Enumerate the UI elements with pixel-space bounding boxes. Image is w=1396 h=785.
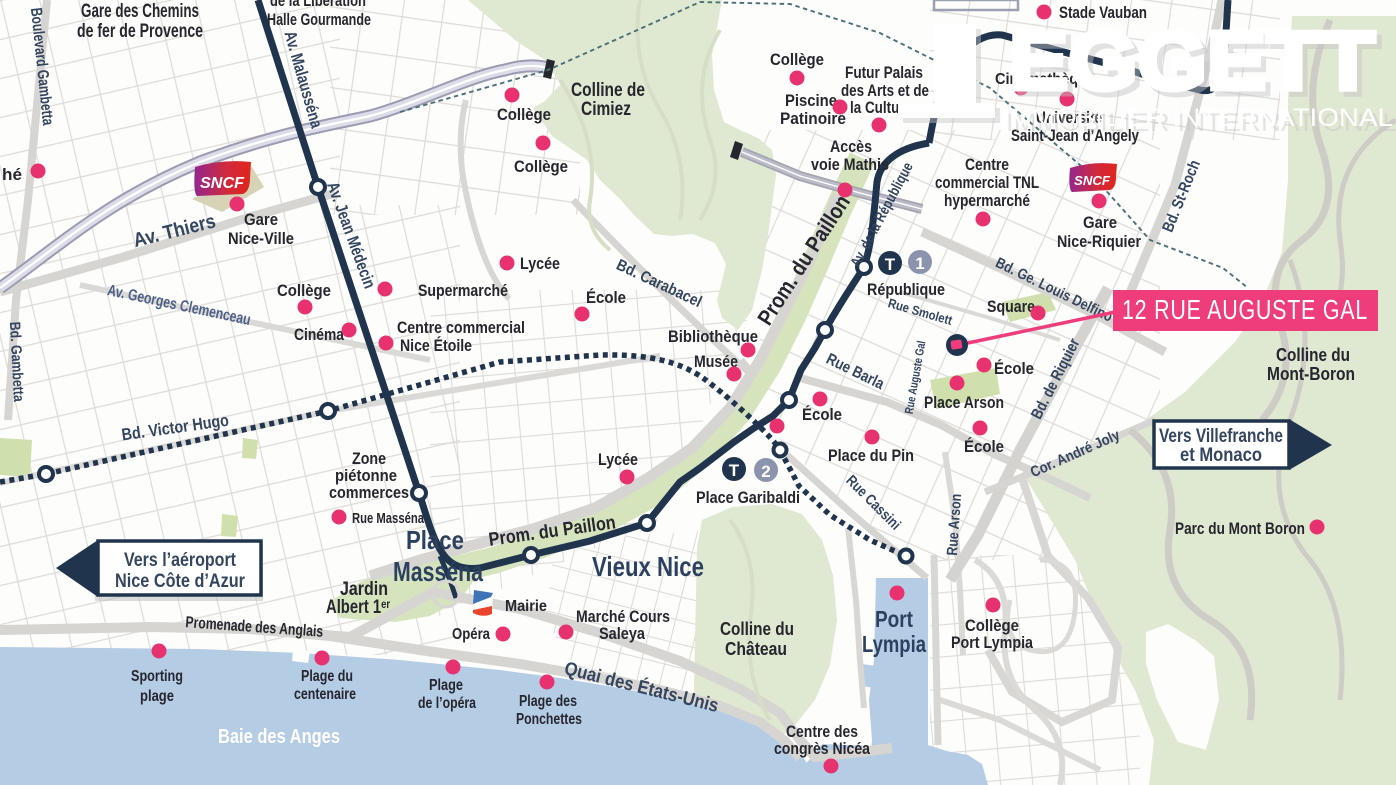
svg-text:Collège: Collège <box>770 50 824 69</box>
svg-text:Centre commercial: Centre commercial <box>397 318 525 337</box>
svg-text:Place Arson: Place Arson <box>924 393 1004 412</box>
svg-text:Vieux Nice: Vieux Nice <box>592 551 704 582</box>
svg-text:Plage des: Plage des <box>519 693 577 710</box>
svg-text:Accès: Accès <box>830 137 872 156</box>
svg-text:de la Libération: de la Libération <box>270 0 366 10</box>
svg-text:Saleya: Saleya <box>599 624 645 643</box>
svg-text:12 RUE AUGUSTE GAL: 12 RUE AUGUSTE GAL <box>1122 294 1368 325</box>
svg-text:Port: Port <box>875 606 913 632</box>
svg-text:République: République <box>867 280 945 299</box>
svg-text:hypermarché: hypermarché <box>944 191 1030 210</box>
svg-text:Vers Villefranche: Vers Villefranche <box>1159 426 1283 447</box>
svg-text:centenaire: centenaire <box>294 686 356 703</box>
svg-text:École: École <box>964 437 1004 456</box>
svg-text:Collège: Collège <box>497 105 551 124</box>
svg-text:Lympia: Lympia <box>862 631 926 657</box>
svg-text:Place du Pin: Place du Pin <box>828 446 914 465</box>
svg-text:Nice Étoile: Nice Étoile <box>400 336 472 355</box>
svg-text:Port Lympia: Port Lympia <box>951 633 1033 652</box>
svg-text:Futur Palais: Futur Palais <box>845 63 923 82</box>
svg-text:et Monaco: et Monaco <box>1180 445 1262 466</box>
svg-text:École: École <box>586 288 626 307</box>
svg-text:Albert 1er: Albert 1er <box>326 597 390 618</box>
svg-text:Parc du Mont Boron: Parc du Mont Boron <box>1175 519 1305 538</box>
svg-text:Place Garibaldi: Place Garibaldi <box>696 488 800 507</box>
svg-text:voie Mathis: voie Mathis <box>811 155 889 174</box>
svg-text:Plage: Plage <box>429 677 463 694</box>
svg-text:Gare: Gare <box>244 210 278 229</box>
svg-text:congrès Nicéa: congrès Nicéa <box>774 739 870 758</box>
svg-text:commercial TNL: commercial TNL <box>935 173 1039 192</box>
svg-text:Lycée: Lycée <box>598 450 638 469</box>
svg-text:Bibliothèque: Bibliothèque <box>668 327 758 346</box>
svg-text:Gare: Gare <box>1083 213 1117 232</box>
svg-text:SNCF: SNCF <box>1074 173 1111 188</box>
svg-text:IMMOBILIER INTERNATIONAL: IMMOBILIER INTERNATIONAL <box>1001 104 1393 132</box>
svg-text:Château: Château <box>725 639 787 659</box>
svg-text:Gare des Chemins: Gare des Chemins <box>81 1 199 22</box>
svg-text:T: T <box>729 461 740 480</box>
svg-text:Sporting: Sporting <box>131 668 183 685</box>
svg-text:Cinéma: Cinéma <box>294 325 344 344</box>
svg-text:Centre: Centre <box>965 155 1009 174</box>
svg-text:Mairie: Mairie <box>505 598 547 615</box>
svg-text:EGGETT: EGGETT <box>1009 14 1375 107</box>
svg-text:Ponchettes: Ponchettes <box>516 711 582 728</box>
svg-text:Square: Square <box>987 297 1035 316</box>
svg-text:Lycée: Lycée <box>520 254 560 273</box>
svg-text:SNCF: SNCF <box>200 175 245 192</box>
svg-text:Supermarché: Supermarché <box>418 281 508 300</box>
svg-text:Baie des Anges: Baie des Anges <box>218 726 340 748</box>
svg-text:Cimiez: Cimiez <box>581 99 631 120</box>
svg-text:plage: plage <box>140 688 174 705</box>
svg-text:Collège: Collège <box>514 157 568 176</box>
svg-text:2: 2 <box>761 462 770 481</box>
svg-text:Colline du: Colline du <box>720 619 794 639</box>
svg-text:Collège: Collège <box>277 281 331 300</box>
svg-text:École: École <box>994 359 1034 378</box>
svg-text:1: 1 <box>915 254 924 273</box>
svg-text:Colline du: Colline du <box>1276 345 1350 365</box>
svg-text:Opéra: Opéra <box>452 626 490 643</box>
svg-text:de l’opéra: de l’opéra <box>418 695 476 712</box>
svg-text:Colline de: Colline de <box>571 80 645 101</box>
svg-text:hé: hé <box>2 165 22 184</box>
svg-text:T: T <box>885 255 896 274</box>
svg-text:Nice-Ville: Nice-Ville <box>228 229 294 248</box>
svg-text:Nice Côte d’Azur: Nice Côte d’Azur <box>115 571 246 592</box>
svg-text:Plage du: Plage du <box>301 668 353 685</box>
svg-text:Halle Gourmande: Halle Gourmande <box>267 10 371 29</box>
svg-text:Place: Place <box>406 525 464 555</box>
svg-text:Piscine: Piscine <box>785 91 837 110</box>
svg-text:Nice-Riquier: Nice-Riquier <box>1057 232 1141 251</box>
svg-text:commerces: commerces <box>329 483 409 502</box>
svg-text:Vers l’aéroport: Vers l’aéroport <box>124 550 237 571</box>
svg-text:École: École <box>802 405 842 424</box>
svg-text:de fer de Provence: de fer de Provence <box>77 21 203 42</box>
svg-text:Mont-Boron: Mont-Boron <box>1267 364 1355 384</box>
